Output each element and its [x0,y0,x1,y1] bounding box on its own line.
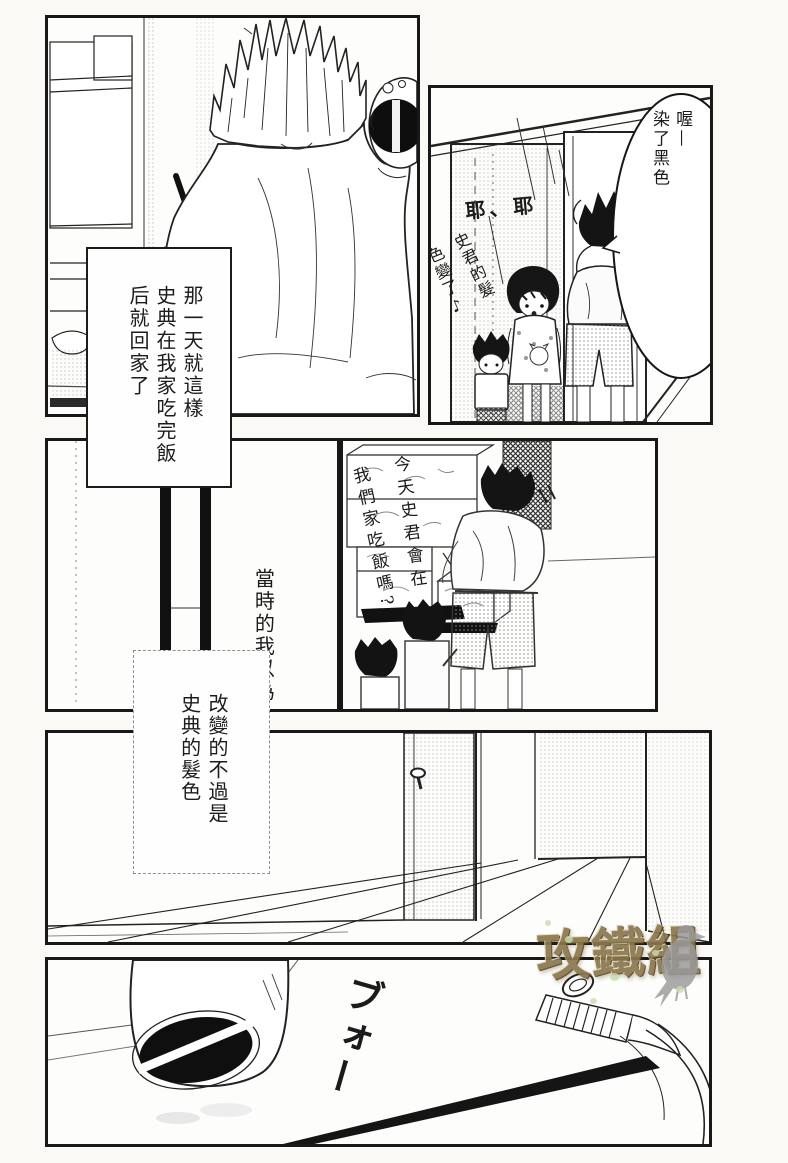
narration-col: 改變的不過是 [206,693,228,865]
watermark: 攻鐵組 [536,903,736,1008]
panel-2: 喔— 染了黑色 耶、耶 史君的髮 色變了♪ [428,85,713,425]
bubble-col: 喔— [672,110,691,188]
panel-4: 今天史君會在 我們家吃飯嗎? [340,438,658,712]
narration-box-2: 改變的不過是 史典的髮色 [133,650,270,874]
narration-col: 后就回家了 [127,285,149,476]
watermark-dot [652,950,659,956]
manga-page: 喔— 染了黑色 耶、耶 史君的髮 色變了♪ [0,0,788,1163]
dove-icon [648,921,714,1009]
door-knob [411,769,425,778]
watermark-dot [565,936,573,943]
watermark-dot [676,986,684,993]
bubble-col: 染了黑色 [649,110,668,188]
watermark-dot [545,920,551,926]
watermark-dot [610,973,619,981]
dryer-nozzle [126,960,288,1099]
watermark-dot [590,998,597,1004]
narration-col: 那一天就這樣 [181,285,203,476]
narration-col: 史典的髮色 [178,693,200,865]
narration-col: 史典在我家吃完飯 [154,285,176,476]
speech-bubble-text: 喔— 染了黑色 [645,110,695,188]
narration-box-1: 那一天就這樣 史典在我家吃完飯 后就回家了 [86,247,232,488]
boy-figure [473,331,510,422]
